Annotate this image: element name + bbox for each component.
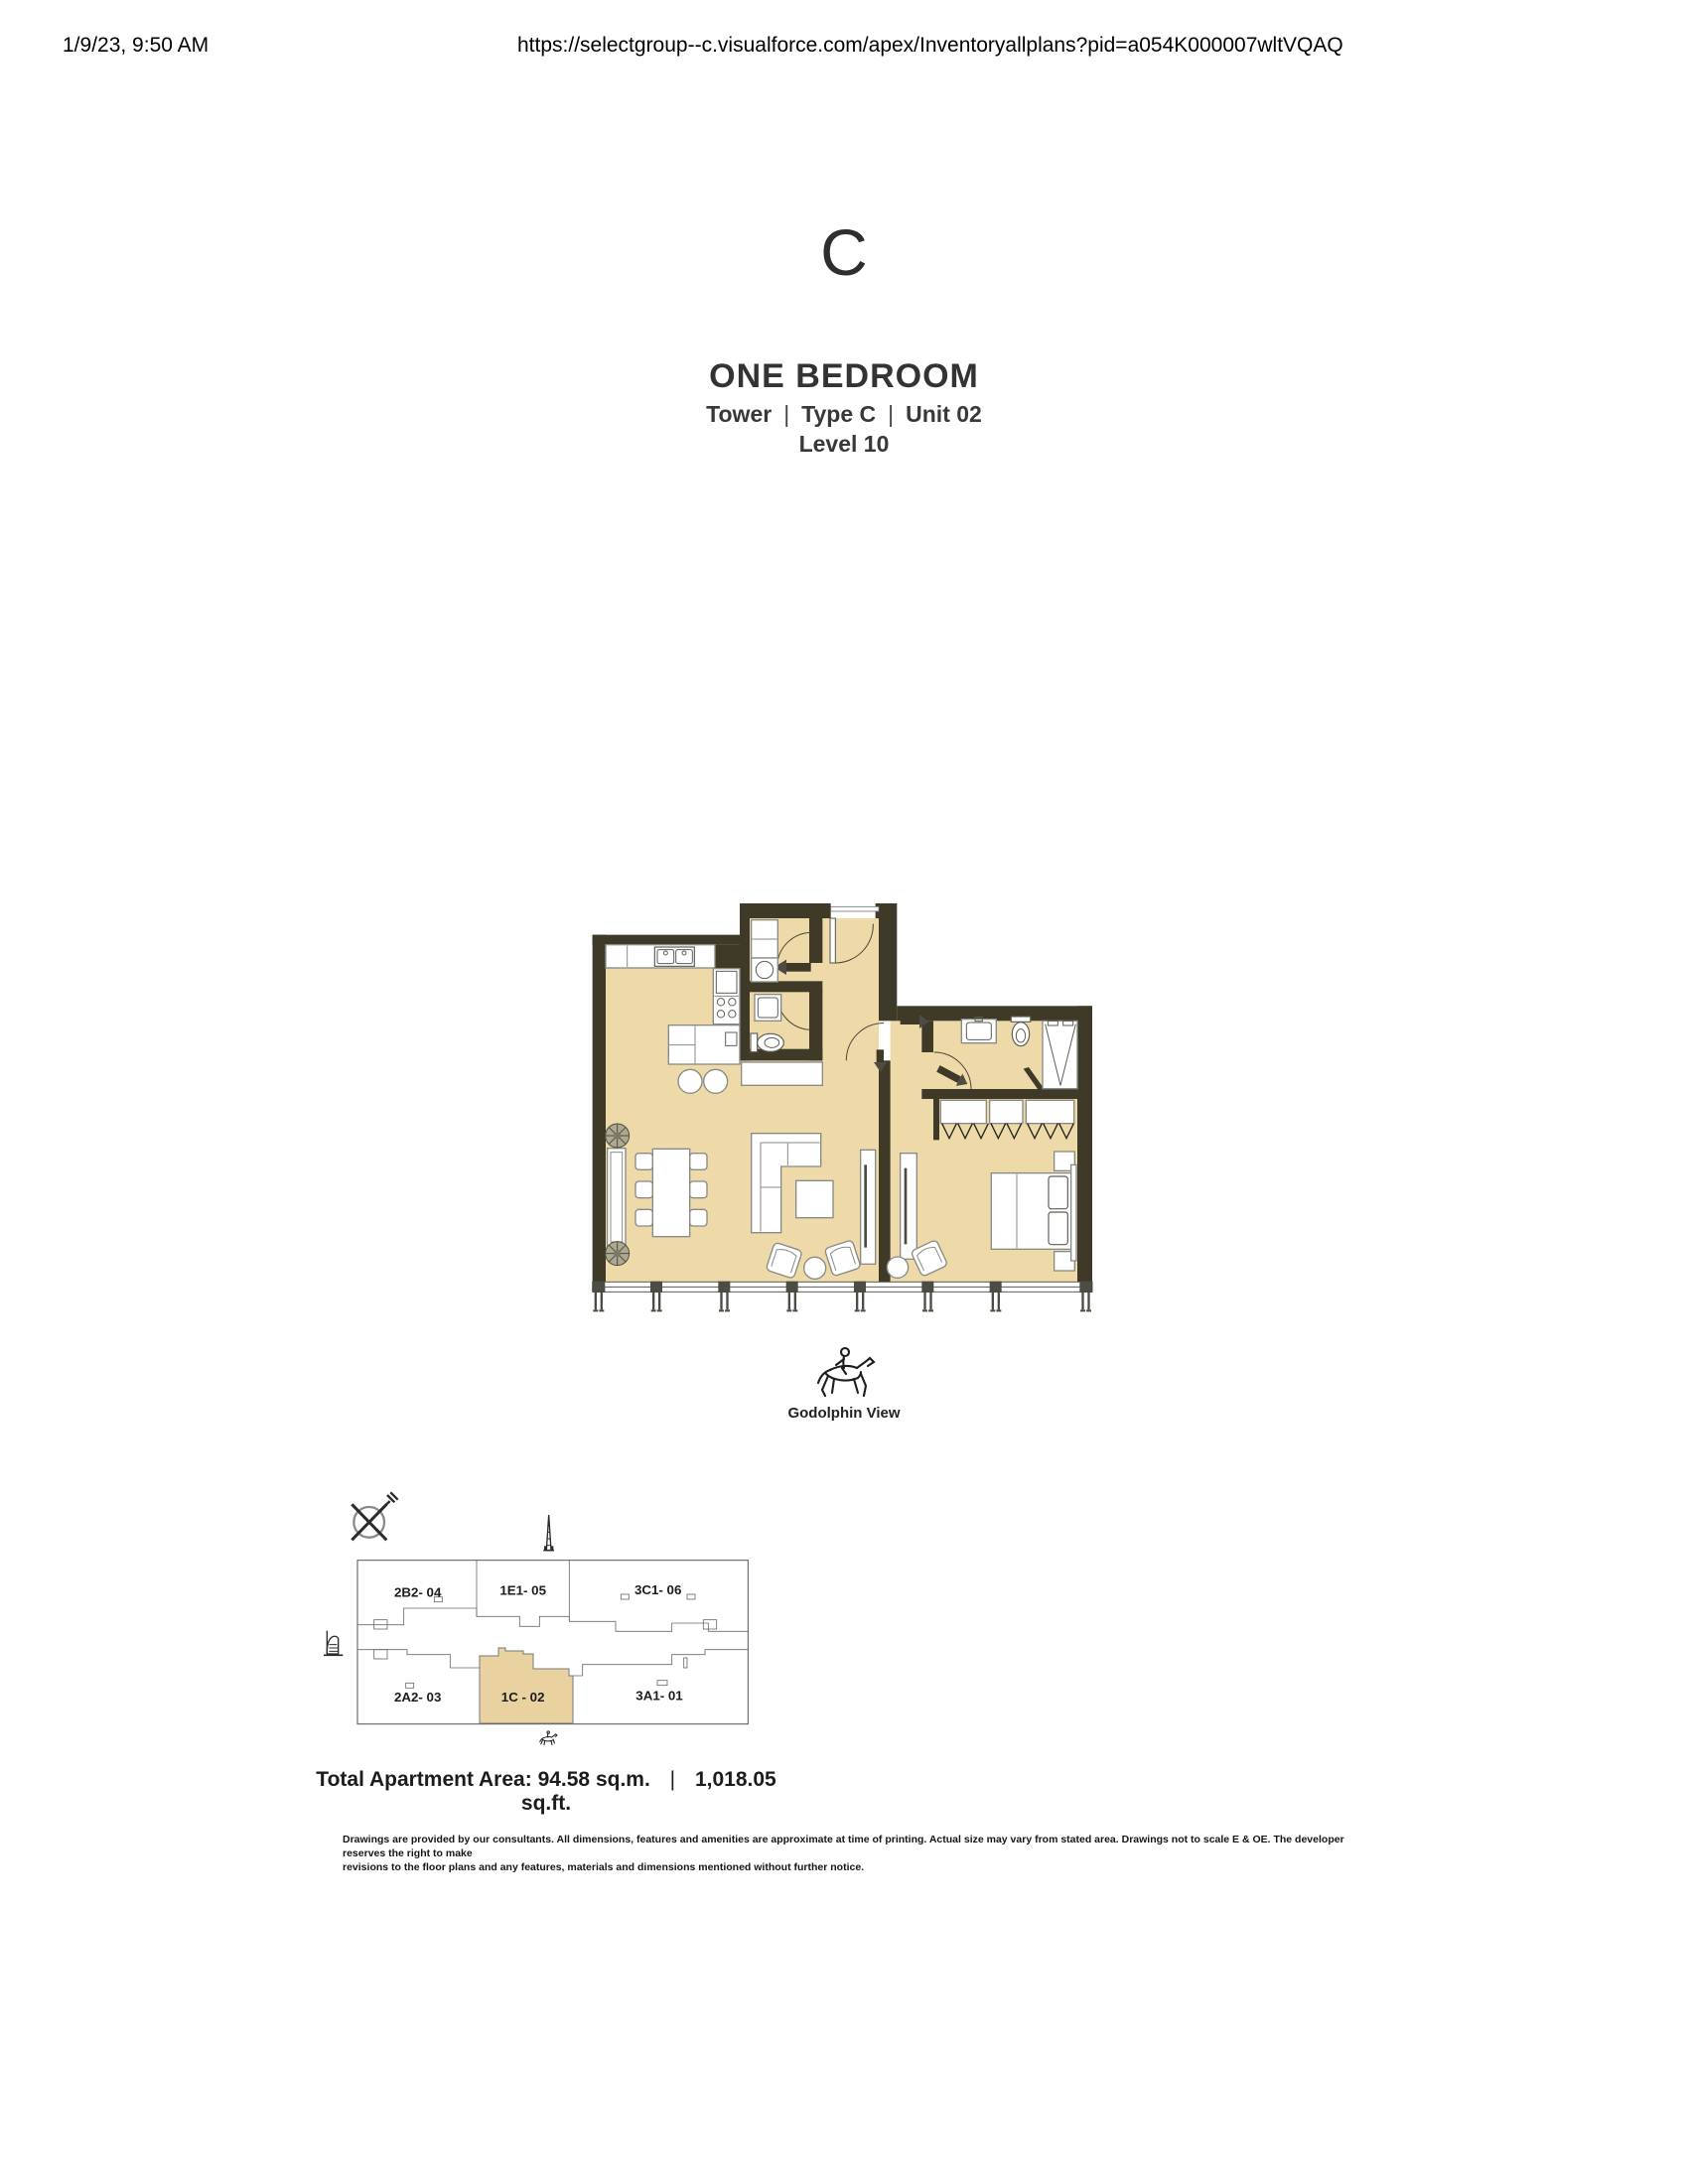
shower xyxy=(1043,1021,1077,1088)
subtitle-type: Type C xyxy=(801,401,876,427)
subtitle-tower: Tower xyxy=(706,401,772,427)
area-separator: | xyxy=(670,1768,675,1791)
bar-stool xyxy=(704,1069,728,1093)
disclaimer-line-2: revisions to the floor plans and any fea… xyxy=(343,1860,1355,1874)
compass-icon xyxy=(352,1492,397,1540)
unit-label-3c1-06: 3C1- 06 xyxy=(634,1582,681,1597)
key-plan-horse-icon xyxy=(540,1731,557,1745)
subtitle-unit: Unit 02 xyxy=(906,401,982,427)
disclaimer-text: Drawings are provided by our consultants… xyxy=(343,1833,1355,1874)
toilet xyxy=(758,1033,784,1051)
plant xyxy=(606,1242,630,1266)
burj-al-arab-icon xyxy=(324,1631,343,1656)
burj-khalifa-icon xyxy=(543,1515,554,1551)
plant xyxy=(606,1124,630,1148)
dining-table xyxy=(652,1149,689,1236)
total-area-line: Total Apartment Area: 94.58 sq.m. | 1,01… xyxy=(298,1768,794,1816)
plan-subtitle: Tower|Type C|Unit 02 xyxy=(0,401,1688,428)
total-area-sqm: 94.58 sq.m. xyxy=(538,1768,650,1791)
side-table xyxy=(887,1257,908,1278)
key-plan: 2B2- 04 1E1- 05 3C1- 06 2A2- 03 1C - 02 … xyxy=(308,1469,784,1757)
printed-page: 1/9/23, 9:50 AM https://selectgroup--c.v… xyxy=(0,0,1688,2184)
pillow xyxy=(1049,1212,1067,1245)
type-letter: C xyxy=(0,214,1688,290)
subtitle-separator: | xyxy=(888,401,894,427)
print-url: https://selectgroup--c.visualforce.com/a… xyxy=(517,34,1343,58)
window-wall xyxy=(593,1282,1092,1312)
unit-label-2a2-03: 2A2- 03 xyxy=(394,1690,441,1705)
godolphin-view-label: Godolphin View xyxy=(695,1405,993,1422)
disclaimer-line-1: Drawings are provided by our consultants… xyxy=(343,1833,1355,1860)
unit-label-2b2-04: 2B2- 04 xyxy=(394,1584,442,1599)
total-area-label: Total Apartment Area: xyxy=(316,1768,531,1791)
plan-title: ONE BEDROOM xyxy=(0,357,1688,396)
plan-level: Level 10 xyxy=(0,431,1688,458)
hall-closet xyxy=(742,1062,823,1085)
coffee-table xyxy=(796,1180,833,1217)
side-table xyxy=(804,1257,826,1279)
bar-stool xyxy=(678,1069,702,1093)
balcony-ticks xyxy=(593,1293,1091,1311)
print-date: 1/9/23, 9:50 AM xyxy=(63,34,209,58)
unit-label-1e1-05: 1E1- 05 xyxy=(499,1583,546,1598)
floor-plan-drawing xyxy=(556,854,1132,1350)
tv-console xyxy=(901,1154,917,1260)
subtitle-separator: | xyxy=(783,401,789,427)
sideboard xyxy=(608,1149,626,1246)
horse-rider-icon xyxy=(812,1346,876,1402)
tv-console xyxy=(861,1150,876,1264)
pillow xyxy=(1049,1176,1067,1209)
unit-label-3a1-01: 3A1- 01 xyxy=(635,1688,683,1703)
unit-label-1c-02: 1C - 02 xyxy=(501,1690,545,1705)
